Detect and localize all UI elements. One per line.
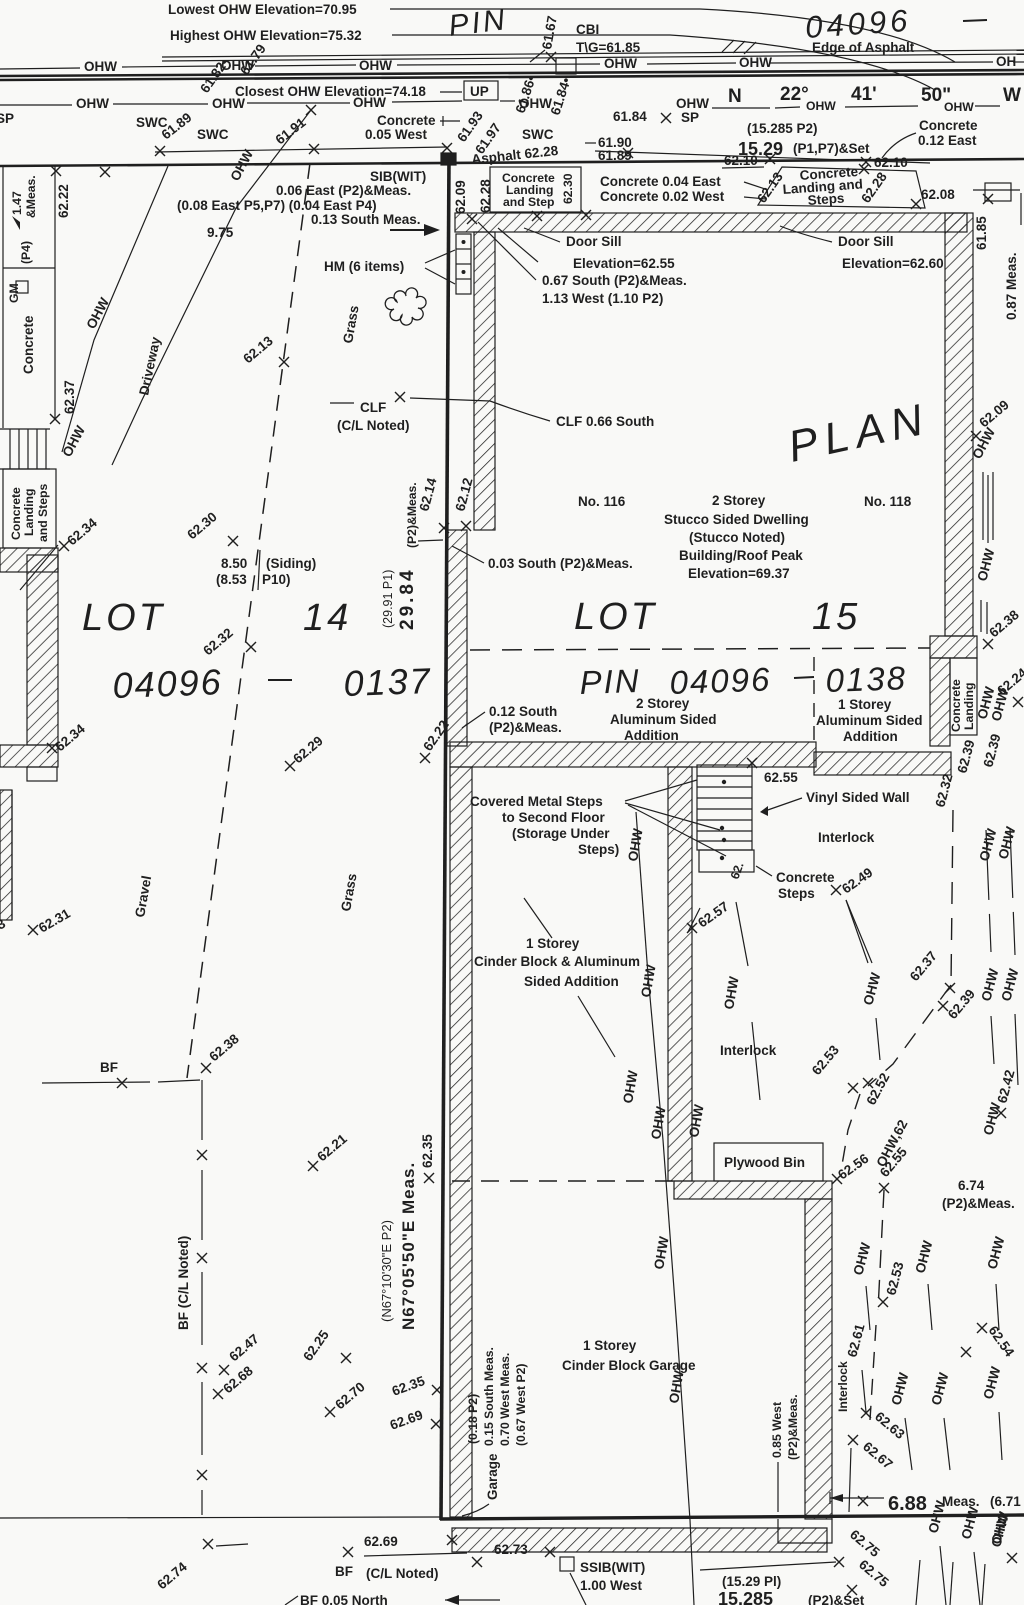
svg-text:0.03 South (P2)&Meas.: 0.03 South (P2)&Meas. [488, 556, 633, 571]
svg-text:OHW: OHW [739, 55, 772, 70]
svg-text:62.30: 62.30 [561, 173, 575, 204]
svg-text:Building/Roof Peak: Building/Roof Peak [679, 548, 803, 563]
svg-text:Aluminum Sided: Aluminum Sided [610, 712, 717, 727]
svg-text:(6.71: (6.71 [990, 1494, 1021, 1509]
svg-text:Stucco Sided Dwelling: Stucco Sided Dwelling [664, 512, 809, 527]
svg-text:BF: BF [100, 1060, 118, 1075]
svg-text:Garage: Garage [485, 1453, 500, 1500]
svg-text:No. 116: No. 116 [578, 494, 626, 509]
svg-text:Interlock: Interlock [818, 830, 875, 845]
svg-text:CLF 0.66 South: CLF 0.66 South [556, 414, 654, 429]
svg-text:6.88: 6.88 [888, 1493, 927, 1515]
svg-text:SP: SP [0, 111, 14, 126]
svg-text:Concrete 0.04 East: Concrete 0.04 East [600, 174, 721, 189]
svg-text:N67°05'50"E Meas.: N67°05'50"E Meas. [399, 1162, 418, 1330]
svg-text:UP: UP [470, 84, 489, 99]
svg-text:1.00 West: 1.00 West [580, 1578, 643, 1593]
svg-text:Lowest OHW Elevation=70.95: Lowest OHW Elevation=70.95 [168, 2, 357, 17]
svg-text:0.05 West: 0.05 West [365, 127, 428, 142]
svg-text:0.12 South: 0.12 South [489, 704, 557, 719]
svg-text:(15.29 Pl): (15.29 Pl) [722, 1574, 781, 1589]
svg-text:Meas.: Meas. [942, 1494, 980, 1509]
svg-text:Concrete: Concrete [776, 870, 835, 885]
svg-text:(P2)&Meas.: (P2)&Meas. [786, 1394, 800, 1460]
svg-text:Concrete: Concrete [949, 679, 963, 732]
svg-text:15.285: 15.285 [718, 1589, 773, 1605]
svg-text:62.69: 62.69 [364, 1534, 398, 1549]
svg-text:6.74: 6.74 [958, 1178, 985, 1193]
svg-text:Landing: Landing [22, 489, 36, 536]
svg-text:Elevation=69.37: Elevation=69.37 [688, 566, 790, 581]
svg-text:0.06 East (P2)&Meas.: 0.06 East (P2)&Meas. [276, 183, 411, 198]
svg-text:1 Storey: 1 Storey [583, 1338, 637, 1353]
svg-text:CLF: CLF [360, 400, 386, 415]
svg-text:62.55: 62.55 [764, 770, 798, 785]
svg-text:Plywood Bin: Plywood Bin [724, 1155, 805, 1170]
svg-text:0137: 0137 [343, 660, 432, 704]
svg-text:(0.18 P2): (0.18 P2) [466, 1394, 480, 1444]
svg-text:Edge of Asphalt: Edge of Asphalt [812, 40, 915, 55]
svg-text:Door Sill: Door Sill [566, 234, 622, 249]
svg-text:Sided Addition: Sided Addition [524, 974, 619, 989]
svg-text:(8.53: (8.53 [216, 572, 247, 587]
svg-text:Concrete 0.02 West: Concrete 0.02 West [600, 189, 725, 204]
svg-text:No. 118: No. 118 [864, 494, 912, 509]
svg-text:N: N [728, 86, 742, 107]
svg-text:Elevation=62.55: Elevation=62.55 [573, 256, 675, 271]
svg-text:SWC: SWC [522, 127, 554, 142]
svg-text:22°: 22° [780, 84, 809, 105]
svg-text:OHW: OHW [84, 59, 117, 74]
svg-text:OHW: OHW [944, 100, 974, 114]
svg-text:BF: BF [335, 1564, 353, 1579]
svg-text:Addition: Addition [624, 728, 679, 743]
svg-text:Landing: Landing [962, 683, 976, 730]
svg-text:Door Sill: Door Sill [838, 234, 894, 249]
svg-text:Closest OHW Elevation=74.18: Closest OHW Elevation=74.18 [235, 84, 426, 99]
svg-text:HM (6 items): HM (6 items) [324, 259, 404, 274]
svg-text:(C/L Noted): (C/L Noted) [337, 418, 410, 433]
svg-text:14: 14 [303, 597, 351, 639]
svg-text:62.22: 62.22 [56, 184, 71, 218]
svg-text:04096: 04096 [112, 661, 223, 706]
svg-text:OHW: OHW [604, 56, 637, 71]
svg-text:04096: 04096 [669, 660, 772, 701]
svg-text:Covered Metal Steps: Covered Metal Steps [470, 794, 603, 809]
svg-text:Concrete: Concrete [377, 113, 436, 128]
svg-text:0.70 West Meas.: 0.70 West Meas. [498, 1353, 512, 1446]
svg-text:BF (C/L Noted): BF (C/L Noted) [176, 1236, 191, 1330]
svg-text:0.67 South (P2)&Meas.: 0.67 South (P2)&Meas. [542, 273, 687, 288]
svg-text:SSIB(WIT): SSIB(WIT) [580, 1560, 645, 1575]
svg-text:and Steps: and Steps [36, 484, 50, 542]
svg-text:0.13 South Meas.: 0.13 South Meas. [311, 212, 421, 227]
svg-text:61.85: 61.85 [974, 216, 989, 250]
svg-text:SP: SP [681, 110, 699, 125]
svg-text:1 Storey: 1 Storey [838, 697, 892, 712]
svg-text:0138: 0138 [825, 659, 908, 699]
svg-text:8.50: 8.50 [221, 556, 247, 571]
svg-text:(0.08 East P5,P7) (0.04 Ea: (0.08 East P5,P7) (0.04 East P4) [177, 198, 377, 213]
svg-text:OHW: OHW [76, 96, 109, 111]
svg-text:(P4): (P4) [19, 241, 33, 264]
svg-text:0.15 South Meas.: 0.15 South Meas. [482, 1347, 496, 1446]
svg-text:0.87 Meas.: 0.87 Meas. [1004, 252, 1019, 320]
svg-text:Vinyl Sided Wall: Vinyl Sided Wall [806, 790, 910, 805]
svg-text:Concrete: Concrete [21, 315, 36, 374]
svg-text:LOT: LOT [574, 596, 657, 638]
svg-text:(0.67 West P2): (0.67 West P2) [514, 1364, 528, 1446]
svg-text:&Meas.: &Meas. [24, 175, 38, 218]
svg-text:Concrete: Concrete [9, 487, 23, 540]
svg-text:to Second Floor: to Second Floor [502, 810, 605, 825]
svg-text:04096: 04096 [804, 3, 912, 45]
svg-text:1.47: 1.47 [10, 191, 24, 215]
svg-text:62.28: 62.28 [478, 179, 493, 213]
svg-text:62.10: 62.10 [874, 155, 908, 170]
svg-text:62.08: 62.08 [921, 187, 955, 202]
svg-text:(N67°10'30"E P2): (N67°10'30"E P2) [379, 1220, 394, 1322]
svg-text:OHW: OHW [676, 96, 709, 111]
svg-text:T\G=61.85: T\G=61.85 [576, 40, 641, 55]
svg-text:1.13 West (1.10 P2): 1.13 West (1.10 P2) [542, 291, 663, 306]
svg-text:OH: OH [996, 54, 1016, 69]
svg-text:W: W [1003, 85, 1021, 106]
svg-text:SWC: SWC [197, 127, 229, 142]
svg-text:CBI: CBI [576, 22, 599, 37]
svg-text:Elevation=62.60: Elevation=62.60 [842, 256, 944, 271]
svg-text:OHW: OHW [806, 99, 836, 113]
svg-text:P10): P10) [262, 572, 291, 587]
svg-text:(C/L Noted): (C/L Noted) [366, 1566, 439, 1581]
svg-text:and Step: and Step [503, 195, 554, 209]
svg-text:15: 15 [812, 596, 860, 638]
svg-text:2 Storey: 2 Storey [712, 493, 766, 508]
svg-text:(15.285 P2): (15.285 P2) [747, 121, 818, 136]
svg-text:Steps): Steps) [578, 842, 619, 857]
svg-text:SIB(WIT): SIB(WIT) [370, 169, 426, 184]
svg-text:Addition: Addition [843, 729, 898, 744]
svg-text:61.84: 61.84 [613, 109, 647, 124]
svg-text:Interlock: Interlock [836, 1361, 850, 1412]
svg-text:(P2)&Meas.: (P2)&Meas. [489, 720, 562, 735]
svg-text:LOT: LOT [82, 597, 165, 639]
svg-text:(P1,P7)&Set: (P1,P7)&Set [793, 141, 870, 156]
svg-text:1 Storey: 1 Storey [526, 936, 580, 951]
svg-text:Steps: Steps [778, 886, 815, 901]
svg-text:Concrete: Concrete [919, 118, 978, 133]
svg-text:Aluminum Sided: Aluminum Sided [816, 713, 923, 728]
svg-text:(Storage Under: (Storage Under [512, 826, 610, 841]
svg-text:PIN: PIN [579, 662, 641, 701]
svg-text:0.85 West: 0.85 West [770, 1402, 784, 1458]
svg-text:(29.91 P1): (29.91 P1) [381, 570, 395, 628]
svg-text:62.09: 62.09 [453, 180, 468, 214]
svg-text:(Stucco Noted): (Stucco Noted) [689, 530, 785, 545]
svg-text:2 Storey: 2 Storey [636, 696, 690, 711]
svg-text:Interlock: Interlock [720, 1043, 777, 1058]
svg-text:Cinder Block & Aluminum: Cinder Block & Aluminum [474, 954, 640, 969]
svg-text:62.35: 62.35 [420, 1134, 435, 1168]
svg-text:9.75: 9.75 [207, 225, 234, 240]
svg-text:(P2)&Meas.: (P2)&Meas. [942, 1196, 1015, 1211]
svg-text:BF 0.05 North: BF 0.05 North [300, 1593, 388, 1605]
svg-text:OHW: OHW [359, 58, 392, 73]
svg-text:(Siding): (Siding) [266, 556, 316, 571]
svg-text:29.84: 29.84 [397, 567, 418, 630]
svg-text:41': 41' [851, 84, 877, 105]
svg-text:0.12 East: 0.12 East [918, 133, 977, 148]
svg-text:(P2)&Meas.: (P2)&Meas. [405, 482, 419, 548]
svg-text:Steps: Steps [807, 190, 845, 208]
svg-text:Highest OHW Elevation=75.32: Highest OHW Elevation=75.32 [170, 28, 362, 43]
